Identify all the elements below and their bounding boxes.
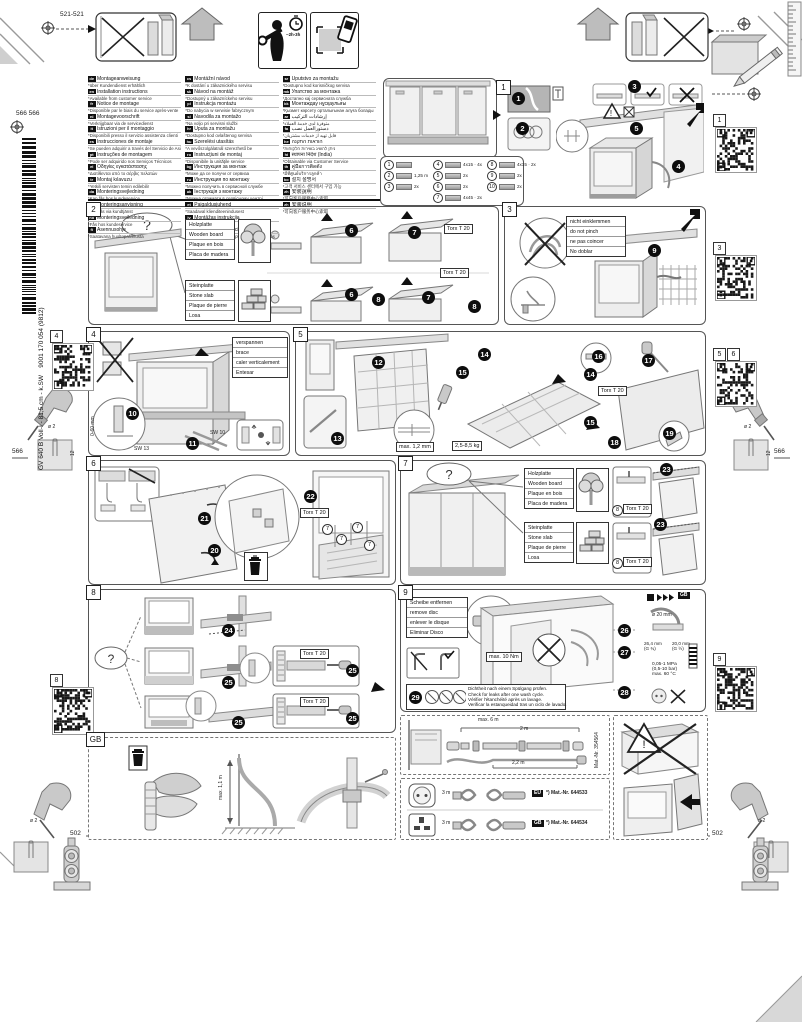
torx-tag-wood: Torx T 20 (444, 224, 473, 234)
dimension-521: 521-521 (60, 11, 84, 18)
label-plaque-de-pierre: Plaque de pierre (186, 301, 234, 311)
language-code-chip: sr (283, 76, 291, 82)
part-quantity: 2x (517, 184, 522, 189)
language-entry: zh安装说明*可向客户服务中心索取 (283, 202, 376, 214)
leak-check-text: Dichtheit nach einem Spülgang prüfen. Ch… (468, 686, 567, 708)
panel5-illustration (296, 332, 705, 455)
language-note: *Se pueden adquirir a través del Servici… (88, 146, 181, 151)
label-eliminar-disco: Eliminar Disco (407, 628, 467, 637)
language-entry: heהוראות התקנה*ניתן להשיג בשירות הלקוחות (283, 139, 376, 151)
language-title: enInstallation instructions (88, 89, 181, 96)
language-entry: hiस्थापना निर्देश (India)*Obtainable via… (283, 152, 376, 164)
step-11: 11 (186, 437, 199, 450)
dimension-566-right: 566 (774, 448, 785, 455)
language-title: ptInstruções de montagem (88, 152, 181, 159)
power-cords-illustration (401, 779, 609, 839)
label-losa: Losa (186, 311, 234, 320)
part-row: 84x15 · 2x (487, 159, 536, 170)
language-code-chip: fa (283, 126, 291, 132)
language-note: *Kan fås via kundtjänst (88, 209, 181, 214)
stone-slab-icon (238, 280, 271, 322)
parts-column: 121,25 m32x (381, 157, 430, 205)
installer-time-icon: ~2h-3h (258, 12, 307, 69)
panel1-cabinet-preview (383, 78, 497, 158)
panel2-number: 2 (86, 202, 101, 217)
language-code-chip: hr (185, 126, 193, 132)
language-title: hrUputa za montažu (185, 126, 278, 133)
language-code-chip: ro (185, 152, 193, 158)
step-13: 13 (331, 432, 344, 445)
language-list: deMontageanweisung*über Kundendienst erh… (88, 76, 380, 200)
leak-line-es: Verificar la estanqueidad tras un ciclo … (468, 702, 567, 707)
label-plaque-en-bois-2: Plaque en bois (525, 489, 573, 499)
panel3-number: 3 (502, 202, 517, 217)
label-plaque-en-bois: Plaque en bois (186, 240, 234, 250)
part-glyph-icon (396, 184, 412, 190)
language-code-chip: pt (88, 152, 96, 158)
step-15a: 15 (456, 366, 469, 379)
label-stone-slab-2: Stone slab (525, 533, 573, 543)
language-entry: ko설치 설명서*고객 서비스 센터에서 구입 가능 (283, 177, 376, 189)
label-brace: brace (233, 348, 287, 358)
doc-number: 9001 170 054 (9812) (38, 307, 45, 367)
hose-length-2m: 2 m (520, 726, 528, 732)
label-nicht-einklemmen: nicht einklemmen (567, 217, 625, 227)
language-code-chip: nl (88, 114, 96, 120)
language-note: *Available from customer service (88, 96, 181, 101)
step-2: 2 (516, 122, 529, 135)
language-code-chip: fi (88, 227, 96, 233)
language-code-chip: tr (88, 177, 96, 183)
part-row: 92x (487, 170, 536, 181)
panel6-number: 6 (86, 456, 101, 471)
panel1-parts-list: 121,25 m32x44x15 · 4x52x62x74x45 · 2x84x… (380, 156, 524, 206)
language-entry: elΟδηγίες εγκατάστασης*Διατίθενται από τ… (88, 164, 181, 176)
part-glyph-icon (499, 184, 515, 190)
part-row: 74x45 · 2x (433, 192, 482, 203)
language-code-chip: mk (283, 89, 291, 95)
qr-code-8 (52, 687, 94, 735)
step-1: 1 (512, 92, 525, 105)
language-note: *Disponibili presso il servizio assisten… (88, 133, 181, 138)
torx-tag-stone: Torx T 20 (440, 268, 469, 278)
part-row: 21,25 m (384, 170, 428, 181)
part-number: 5 (433, 171, 443, 181)
dimension-566-left: 566 (12, 448, 23, 455)
language-note: *Obtainable via Customer Service (283, 159, 376, 164)
part-ref-7c: 7 (352, 522, 363, 533)
part-row: 52x (433, 170, 482, 181)
language-title: daMonteringsvejledning (88, 189, 181, 196)
part-quantity: 1,25 m (414, 173, 428, 178)
step-6-stone: 6 (345, 288, 358, 301)
language-note: *Saatavana huoltopalvelusta (88, 234, 181, 239)
language-entry: nlMontagevoorschrift*Verkrijgbaar via de… (88, 114, 181, 126)
language-entry: enInstallation instructions*Available fr… (88, 89, 181, 101)
language-note: *มีที่ศูนย์บริการลูกค้า (283, 171, 376, 176)
gb-reference-chip: GB (678, 592, 690, 599)
language-list-divider (88, 199, 380, 201)
part-row: 32x (384, 181, 428, 192)
panel4-brace-label: verspannen brace caler verticalement Ent… (232, 337, 288, 378)
part-glyph-icon (445, 195, 461, 201)
cord-eu-length: 3 m (442, 790, 450, 796)
step-10: 10 (126, 407, 139, 420)
language-code-chip: it (88, 126, 96, 132)
qr-label-6: 6 (727, 348, 740, 361)
step-29: 29 (409, 691, 422, 704)
drill-depth-left: 12 (70, 440, 76, 456)
part-row: 62x (433, 181, 482, 192)
cord-uk-length: 3 m (442, 820, 450, 826)
step-21: 21 (198, 512, 211, 525)
label-verspannen: verspannen (233, 338, 287, 348)
part-number: 6 (433, 182, 443, 192)
language-title: trMontaj kılavuzu (88, 177, 181, 184)
drill-diameter-left: ø 2 (48, 424, 55, 430)
language-note: *A vevőszolgálatnál szerezhető be (185, 146, 278, 151)
part-glyph-icon (499, 173, 515, 179)
language-note: *Διατίθενται από το σέρβις πελατών (88, 171, 181, 176)
weight-tag: 2,5-8,5 kg (452, 441, 482, 451)
step-14a: 14 (478, 348, 491, 361)
svg-text:?: ? (108, 652, 115, 666)
part-quantity: 2x (463, 184, 468, 189)
gb-panel-label: GB (86, 732, 105, 747)
parts-column: 84x15 · 2x92x102x (484, 157, 538, 205)
language-note: *Dostupno kod korisničkog servisa (283, 83, 376, 88)
step-22: 22 (304, 490, 317, 503)
language-title: thคู่มือการติดตั้ง (283, 164, 376, 171)
panel6-illustration (89, 461, 395, 584)
label-placa-de-madera: Placa de madera (186, 250, 234, 259)
label-stone-slab: Stone slab (186, 291, 234, 301)
language-code-chip: ar (283, 114, 291, 120)
qr-label-5: 5 (713, 348, 726, 361)
language-title: elΟδηγίες εγκατάστασης (88, 164, 181, 171)
language-note: *可向客户服务中心索取 (283, 209, 376, 214)
language-code-chip: cs (185, 76, 193, 82)
language-entry: bgИнструкция за монтаж*Може да се получи… (185, 164, 278, 176)
part-quantity: 2x (517, 173, 522, 178)
part-row: 102x (487, 181, 536, 192)
part-ref-7d: 7 (364, 540, 375, 551)
language-title: ukІнструкція з монтажу (185, 189, 278, 196)
language-title: noMonteringsveiledning (88, 215, 181, 222)
language-entry: itIstruzioni per il montaggio*Disponibil… (88, 126, 181, 138)
language-note: *Yetkili servisten temin edilebilir (88, 184, 181, 189)
torx-tag-panel8b: Torx T 20 (300, 697, 329, 707)
language-code-chip: pl (185, 101, 193, 107)
step-20: 20 (208, 544, 221, 557)
language-title: frNotice de montage (88, 101, 181, 108)
door-warning-illustration: ! (614, 716, 707, 839)
part-glyph-icon (499, 162, 515, 168)
model-code: GV 640 B VolI-I - 81,5 cm - k.SW (38, 375, 45, 470)
language-code-chip: en (88, 89, 96, 95)
language-code-chip: sk (185, 89, 193, 95)
panel5 (295, 331, 706, 456)
part-glyph-icon (445, 173, 461, 179)
language-code-chip: ko (283, 177, 291, 183)
wrench-sw13: SW 13 (134, 446, 149, 452)
step-25-box-a: 25 (346, 664, 359, 677)
language-entry: etPaigaldusjuhend*Saadaval klienditeenin… (185, 202, 278, 214)
step-3: 3 (628, 80, 641, 93)
label-do-not-pinch: do not pinch (567, 227, 625, 237)
part-number: 2 (384, 171, 394, 181)
part-ref-8b: 8 (612, 558, 623, 569)
language-code-chip: ru (185, 177, 193, 183)
language-entry: fiAsennusohje*Saatavana huoltopalvelusta (88, 227, 181, 239)
dimension-502-right: 502 (712, 830, 723, 837)
language-note: *Verkrijgbaar via de servicedienst (88, 121, 181, 126)
language-note: *Disponibile la unităţile service (185, 159, 278, 164)
step-16: 16 (592, 350, 605, 363)
step-4: 4 (672, 160, 685, 173)
part-row: 1 (384, 159, 428, 170)
language-entry: mkУпатство за монтажа*Достапно кај серви… (283, 89, 376, 101)
tree-icon (238, 219, 271, 263)
step-28: 28 (618, 686, 631, 699)
language-code-chip: kk (283, 101, 291, 107)
qr-code-1 (715, 127, 757, 173)
step-8-stone-b: 8 (468, 300, 481, 313)
part-row: 44x15 · 4x (433, 159, 482, 170)
language-code-chip: uk (185, 189, 193, 195)
part-number: 10 (487, 182, 497, 192)
part-ref-7a: 7 (322, 524, 333, 535)
language-note: *Қызмет көрсету орталығынан алуға болады (283, 108, 376, 113)
step-8-stone-a: 8 (372, 293, 385, 306)
language-note: *Fås hos kundeservice (88, 222, 181, 227)
language-entry: kkМонтаждау нұсқаулығы*Қызмет көрсету ор… (283, 101, 376, 113)
language-title: svMonteringsanvisning (88, 202, 181, 209)
part-quantity: 4x15 · 4x (463, 162, 482, 167)
language-entry: thคู่มือการติดตั้ง*มีที่ศูนย์บริการลูกค้… (283, 164, 376, 176)
spec-g34: 26,4 mm(G ¾) (644, 641, 662, 651)
step-5: 5 (630, 122, 643, 135)
step-23b: 23 (654, 518, 667, 531)
language-entry: roInstrucţiuni de montaj*Disponibile la … (185, 152, 278, 164)
language-title: arإرشادات التركيب (283, 114, 376, 121)
language-code-chip: zh (283, 202, 291, 208)
label-no-doblar: No doblar (567, 247, 625, 256)
language-note: *ניתן להשיג בשירות הלקוחות (283, 146, 376, 151)
language-note: *Dostupný u zákazníckeho servisu (185, 96, 278, 101)
language-entry: plInstrukcja montażu*Do nabycia w serwis… (185, 101, 278, 113)
language-note: *Na voljo pri servisni službi (185, 121, 278, 126)
drill-diameter-bottom-right: ø 2 (758, 818, 765, 824)
label-ne-pas-coincer: ne pas coincer (567, 237, 625, 247)
language-title: huSzerelési utasítás (185, 139, 278, 146)
step-7-wood: 7 (408, 226, 421, 239)
qr-scan-phone-icon (310, 12, 359, 69)
language-title: roInstrucţiuni de montaj (185, 152, 278, 159)
qr-label-8: 8 (50, 674, 63, 687)
label-scheibe-entfernen: Scheibe entfernen (407, 598, 467, 608)
step-7-stone: 7 (422, 291, 435, 304)
language-code-chip: he (283, 139, 291, 145)
qr-label-3: 3 (713, 242, 726, 255)
drill-diameter-bottom-left: ø 2 (30, 818, 37, 824)
panel1-main-scene: ! (556, 102, 704, 204)
panel4-number: 4 (86, 327, 101, 342)
step-6-wood: 6 (345, 224, 358, 237)
language-title: csMontážní návod (185, 76, 278, 83)
language-code-chip: th (283, 164, 291, 170)
label-losa-2: Losa (525, 553, 573, 562)
language-code-chip: de (88, 76, 96, 82)
language-note: *Pode ser adquirido nos Serviços Técnico… (88, 159, 181, 164)
power-cords-panel (400, 778, 610, 840)
panel3-warning-label: nicht einklemmen do not pinch ne pas coi… (566, 216, 626, 257)
panel8-illustration: ? (89, 590, 395, 732)
language-title: slNavodila za montažo (185, 114, 278, 121)
part-quantity: 4x45 · 2x (463, 195, 482, 200)
language-column-2: csMontážní návod*K dostání u zákaznickéh… (185, 76, 282, 200)
parts-column: 44x15 · 4x52x62x74x45 · 2x (430, 157, 484, 205)
language-note: *Disponible par le biais du service aprè… (88, 108, 181, 113)
hose-length-22m: 2,2 m (512, 760, 525, 766)
part-glyph-icon (396, 173, 412, 179)
step-25-box-b: 25 (346, 712, 359, 725)
model-doc-number-vertical: GV 640 B VolI-I - 81,5 cm - k.SW 9001 17… (38, 140, 45, 470)
language-entry: hrUputa za montažu*Dostupno kod ovlašten… (185, 126, 278, 138)
language-title: skNávod na montáž (185, 89, 278, 96)
qr-code-4 (52, 343, 94, 391)
cord-uk-chip: GB (532, 820, 544, 827)
spec-diameter: ø 20 mm (652, 612, 672, 618)
drill-depth-right: 12 (766, 440, 772, 456)
language-note: *Saadaval klienditeenindusest (185, 209, 278, 214)
language-title: kkМонтаждау нұсқаулығы (283, 101, 376, 108)
step-23a: 23 (660, 463, 673, 476)
language-note: *Do nabycia w serwisie fabrycznym (185, 108, 278, 113)
language-entry: arإرشادات التركيب*متوفرة لدى خدمة العملا… (283, 114, 376, 126)
panel1-number: 1 (496, 80, 511, 95)
language-entry: srUputstvo za montažu*Dostupno kod koris… (283, 76, 376, 88)
label-steinplatte: Steinplatte (186, 281, 234, 291)
torx-tag-panel5: Torx T 20 (598, 386, 627, 396)
language-title: fiAsennusohje (88, 227, 181, 234)
drain-height-dim: max. 1,1 m (218, 766, 224, 800)
label-steinplatte-2: Steinplatte (525, 523, 573, 533)
language-title: mkУпатство за монтажа (283, 89, 376, 96)
part-ref-8a: 8 (612, 505, 623, 516)
spec-pressure: 0,05-1 MPa(0,5-10 bar)max. 60 °C (652, 662, 677, 677)
language-title: zh安裝說明 (283, 189, 376, 196)
barcode (22, 138, 36, 315)
language-title: ko설치 설명서 (283, 177, 376, 184)
part-number: 7 (433, 193, 443, 203)
language-entry: trMontaj kılavuzu*Yetkili servisten temi… (88, 177, 181, 189)
label-enlever-le-disque: enlever le disque (407, 618, 467, 628)
qr-code-9 (715, 666, 757, 712)
gb-panel-illustration (89, 738, 395, 839)
step-19: 19 (663, 427, 676, 440)
part-quantity: 2x (463, 173, 468, 178)
drill-diameter-right: ø 2 (744, 424, 751, 430)
step-26: 26 (618, 624, 631, 637)
panel2-stone-label: Steinplatte Stone slab Plaque de pierre … (185, 280, 235, 321)
label-holzplatte: Holzplatte (186, 220, 234, 230)
language-note: *Може да се получи от сервиза (185, 171, 278, 176)
svg-text:!: ! (642, 739, 645, 751)
language-note: *قابل تهیه از خدمات مشتریان (283, 133, 376, 138)
qr-label-4: 4 (50, 330, 63, 343)
no-leak-icons (424, 688, 466, 706)
gap-tag: max. 1,2 mm (396, 442, 434, 452)
label-entesar: Entesar (233, 368, 287, 377)
instruction-sheet-page: 521-521 566 566 566 566 502 502 ø 2 12 ø… (0, 0, 802, 1022)
language-entry: faدستورالعمل نصب*قابل تهیه از خدمات مشتر… (283, 126, 376, 138)
dimension-566-566: 566 566 (16, 110, 40, 117)
torx-tag-panel8a: Torx T 20 (300, 649, 329, 659)
step-12: 12 (372, 356, 385, 369)
language-entry: slNavodila za montažo*Na voljo pri servi… (185, 114, 278, 126)
spec-g12: 20,0 mm(G ½) (672, 641, 690, 651)
language-column-1: deMontageanweisung*über Kundendienst erh… (88, 76, 185, 200)
language-code-chip: fr (88, 101, 96, 107)
language-code-chip: et (185, 202, 193, 208)
label-caler-verticalement: caler verticalement (233, 358, 287, 368)
label-plaque-de-pierre-2: Plaque de pierre (525, 543, 573, 553)
part-number: 9 (487, 171, 497, 181)
hose-extension-illustration (401, 716, 609, 774)
part-quantity: 2x (414, 184, 419, 189)
cord-eu-chip: EU (532, 790, 543, 797)
part-ref-7b: 7 (336, 534, 347, 545)
language-code-chip: da (88, 189, 96, 195)
part-quantity: 4x15 · 2x (517, 162, 536, 167)
language-title: zh安装说明 (283, 202, 376, 209)
language-column-3: srUputstvo za montažu*Dostupno kod koris… (283, 76, 380, 200)
language-entry: noMonteringsveiledning*Fås hos kundeserv… (88, 215, 181, 227)
step-15b: 15 (584, 416, 597, 429)
language-title: itIstruzioni per il montaggio (88, 126, 181, 133)
step-9: 9 (648, 244, 661, 257)
language-note: *K dostání u zákaznického servisu (185, 83, 278, 88)
panel7-wood-label: Holzplatte Wooden board Plaque en bois P… (524, 468, 574, 509)
language-note: *Достапно кај сервисната служба (283, 96, 376, 101)
language-title: hiस्थापना निर्देश (India) (283, 152, 376, 159)
torx-tag-panel7b: Torx T 20 (623, 557, 652, 567)
torque-tag: max. 10 Nm (486, 652, 522, 662)
language-code-chip: sl (185, 114, 193, 120)
panel7-number: 7 (398, 456, 413, 471)
language-note: *Dostupno kod ovlaštenog servisa (185, 133, 278, 138)
trash-icon (244, 552, 268, 581)
hose-max-length: max. 6 m (478, 717, 499, 723)
label-placa-de-madera-2: Placa de madera (525, 499, 573, 508)
panel7-stone-label: Steinplatte Stone slab Plaque de pierre … (524, 522, 574, 563)
language-title: bgИнструкция за монтаж (185, 164, 278, 171)
language-entry: ruИнструкция по монтажу*Можно получить в… (185, 177, 278, 189)
step-25-mid: 25 (222, 676, 235, 689)
language-note: *متوفرة لدى خدمة العملاء (283, 121, 376, 126)
panel9-disc-label: Scheibe entfernen remove disc enlever le… (406, 597, 468, 638)
language-entry: ptInstruções de montagem*Pode ser adquir… (88, 152, 181, 164)
part-number: 1 (384, 160, 394, 170)
panel9-number: 9 (398, 585, 413, 600)
panel6 (88, 460, 396, 585)
hose-mat-number: Mat.-Nr. 354564 (594, 718, 600, 768)
language-entry: deMontageanweisung*über Kundendienst erh… (88, 76, 181, 88)
wrench-sw10: SW 10 (210, 430, 225, 436)
door-warning-panel: ! (613, 715, 708, 840)
language-title: etPaigaldusjuhend (185, 202, 278, 209)
